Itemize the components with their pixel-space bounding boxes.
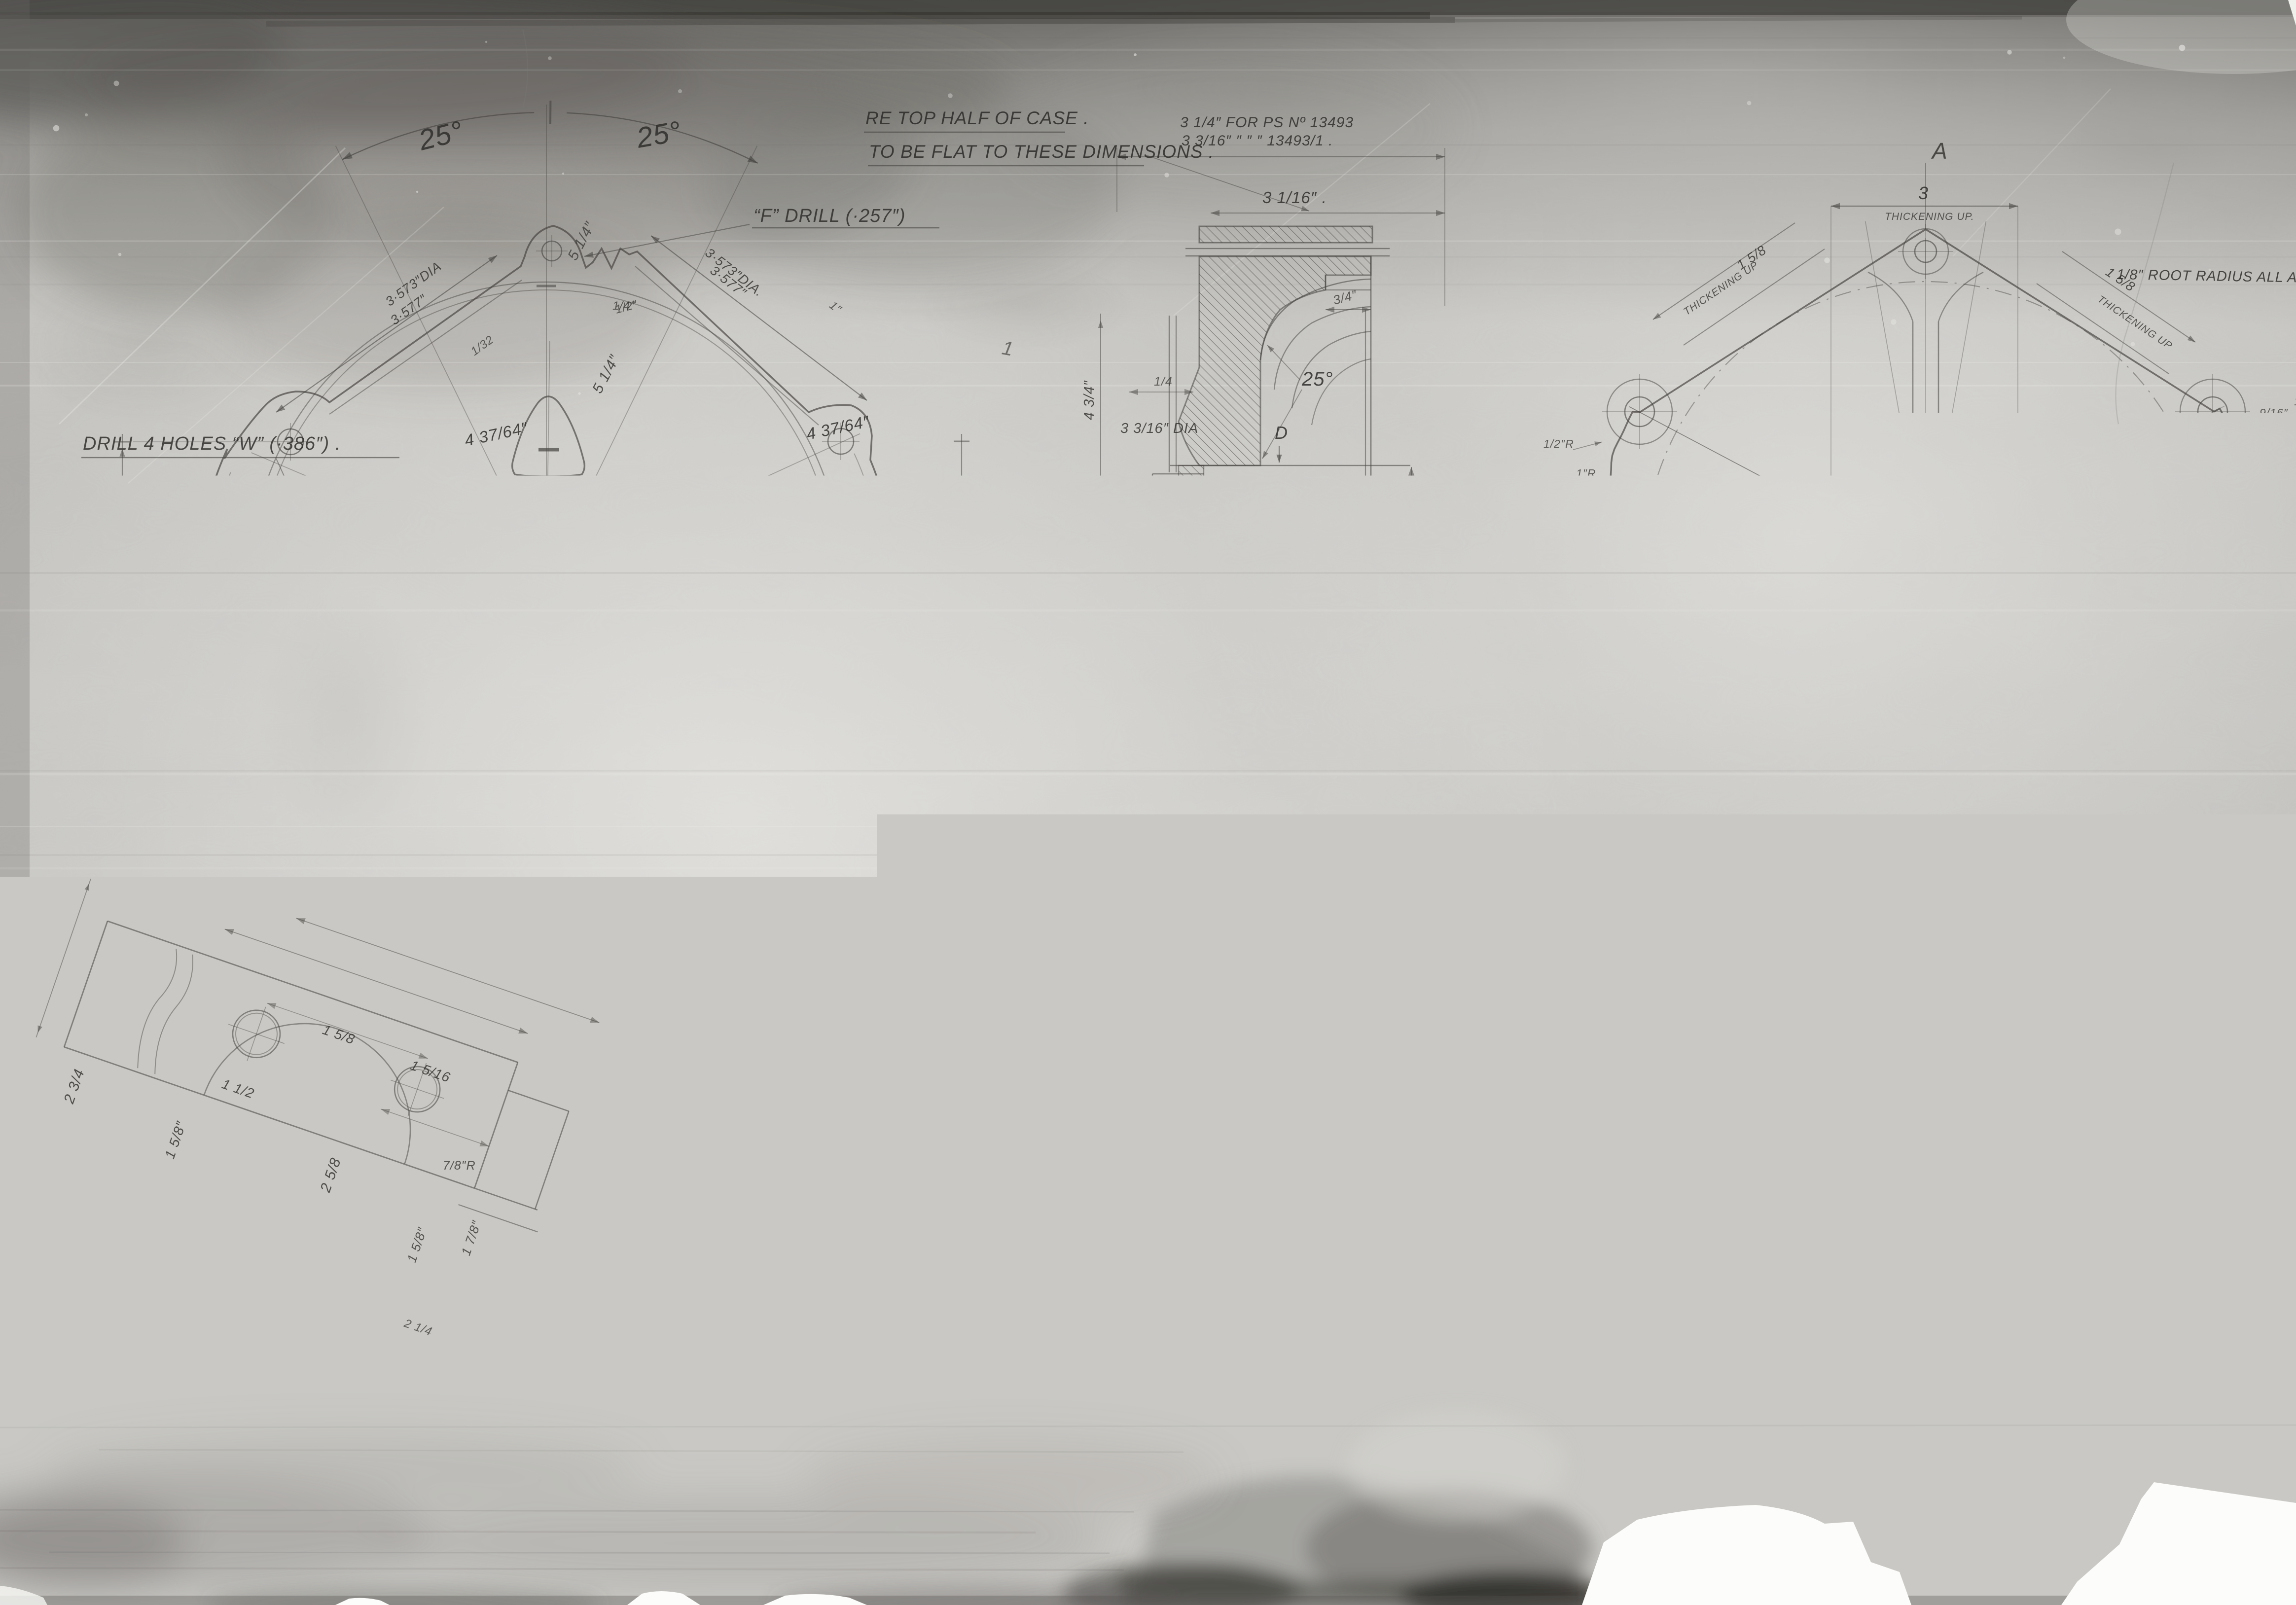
svg-text:5/8″R: 5/8″R — [1227, 1195, 1265, 1211]
svg-text:“F” DRILL (·257″): “F” DRILL (·257″) — [753, 206, 905, 226]
svg-text:5/8″R: 5/8″R — [2169, 850, 2199, 863]
svg-text:2 3/16 DIA: 2 3/16 DIA — [1206, 492, 1221, 560]
svg-text:4 1/2″: 4 1/2″ — [1083, 689, 1099, 729]
svg-text:1 3/4″: 1 3/4″ — [1418, 512, 1434, 552]
svg-text:11/16″ x 13/16″: 11/16″ x 13/16″ — [1077, 1141, 1174, 1156]
svg-text:TAP 3/4″ x20 WHIT x 11/16″ FUL: TAP 3/4″ x20 WHIT x 11/16″ FULL THREAD — [939, 1168, 1276, 1186]
svg-text:RE TOP HALF OF CASE .: RE TOP HALF OF CASE . — [865, 108, 1089, 128]
svg-text:25°: 25° — [1301, 368, 1333, 390]
svg-text:TO THESE DIMENSIONS: TO THESE DIMENSIONS — [1409, 883, 1619, 902]
svg-text:1/2″R: 1/2″R — [2203, 863, 2234, 876]
svg-text:4 3/4″: 4 3/4″ — [1081, 380, 1097, 420]
svg-text:1″R: 1″R — [1597, 636, 1617, 648]
svg-text:SECTION C D: SECTION C D — [1176, 1305, 1293, 1324]
svg-text:3/4″ DIA PADS ON ALL LUGS: 3/4″ DIA PADS ON ALL LUGS — [1028, 923, 1271, 942]
svg-text:3 5/8″: 3 5/8″ — [636, 924, 681, 942]
svg-text:1/4: 1/4 — [2292, 571, 2296, 584]
svg-text:1″: 1″ — [2294, 395, 2296, 408]
svg-text:2″: 2″ — [463, 605, 476, 619]
svg-text:1/16 MACHINING ALLOWANCE WH: 1/16 MACHINING ALLOWANCE WHERE MARKED —— — [1674, 1332, 2068, 1349]
svg-text:3 1/4″ FOR PS Nº 13493: 3 1/4″ FOR PS Nº 13493 — [1180, 114, 1354, 131]
svg-text:15/32″R: 15/32″R — [1676, 832, 1720, 845]
svg-text:3: 3 — [1918, 183, 1929, 203]
svg-text:3 5/8″: 3 5/8″ — [422, 926, 466, 944]
svg-text:TO BE FLAT TO THESE DIMEN: TO BE FLAT TO THESE DIMENSIONS . — [869, 142, 1214, 162]
svg-text:1″R: 1″R — [1569, 516, 1589, 529]
svg-text:5/8″R: 5/8″R — [1845, 932, 1876, 945]
svg-text:1/16: 1/16 — [567, 872, 590, 884]
svg-text:DRILL 3 HOLES “O” (·316″): DRILL 3 HOLES “O” (·316″) — [810, 890, 1053, 911]
svg-text:UNLESS OTHERW SE STAT″D .: UNLESS OTHERW SE STAT″D . — [1677, 1359, 1905, 1375]
svg-text:D: D — [1198, 688, 1211, 707]
svg-text:E: E — [1833, 693, 1846, 713]
svg-text:ROOT RADIUS To BE 1/8″ AT BOSS: ROOT RADIUS To BE 1/8″ AT BOSS — [1562, 1149, 1836, 1167]
svg-text:1 1/2: 1 1/2 — [523, 902, 534, 926]
svg-text:1/32″R: 1/32″R — [1138, 491, 1176, 503]
svg-text:TRACED: TRACED — [1999, 1542, 2055, 1560]
svg-text:WITH FLAT BOTTOM: WITH FLAT BOTTOM — [1237, 1141, 1384, 1156]
svg-text:2 11/16″: 2 11/16″ — [1282, 493, 1345, 511]
svg-text:1/8″: 1/8″ — [2220, 883, 2242, 896]
svg-text:SECTION E-F: SECTION E-F — [1748, 1241, 1898, 1266]
svg-text:THICKENING UP.: THICKENING UP. — [1885, 211, 1974, 222]
svg-text:1/2″R: 1/2″R — [2292, 432, 2296, 445]
svg-text:1/4″: 1/4″ — [1282, 836, 1306, 850]
svg-text:DRAWN.: DRAWN. — [1996, 1485, 2055, 1503]
svg-text:2 5/8″: 2 5/8″ — [155, 731, 171, 770]
svg-text:3 1/16″ .: 3 1/16″ . — [1262, 188, 1327, 207]
svg-text:DRILL 4 HOLES: DRILL 4 HOLES — [939, 1140, 1072, 1159]
svg-text:7/16: 7/16 — [1845, 1174, 1868, 1186]
svg-text:9/32″R: 9/32″R — [2288, 488, 2296, 500]
svg-text:1/2″R: 1/2″R — [1697, 871, 1728, 884]
svg-text:F: F — [1995, 691, 2008, 712]
svg-text:1/4: 1/4 — [1154, 375, 1173, 389]
svg-text:1″R: 1″R — [2273, 525, 2294, 537]
svg-text:13493: 13493 — [2065, 1241, 2128, 1265]
svg-text:9/16″: 9/16″ — [2260, 406, 2288, 419]
svg-text:3/8″: 3/8″ — [102, 606, 115, 629]
svg-text:1 1/4″: 1 1/4″ — [154, 617, 170, 656]
svg-text:5/8″R: 5/8″R — [1733, 871, 1764, 884]
svg-text:1/2″R: 1/2″R — [1873, 967, 1903, 980]
svg-text:B: B — [1922, 968, 1937, 992]
svg-text:& TAPER To “0” AT EDGE OF CAS: & TAPER To “0” AT EDGE OF CASE . — [1562, 1179, 1843, 1197]
svg-text:D: D — [1275, 423, 1288, 443]
svg-text:FROM ¢ .: FROM ¢ . — [1429, 504, 1504, 522]
svg-text:1″R: 1″R — [1576, 467, 1596, 480]
svg-text:1 5/8: 1 5/8 — [802, 918, 817, 949]
svg-text:7/8″R: 7/8″R — [443, 1159, 476, 1173]
svg-text:1 1/4″: 1 1/4″ — [914, 613, 929, 652]
svg-text:2 5/8″: 2 5/8″ — [936, 496, 953, 538]
svg-text:1/4″R: 1/4″R — [1607, 528, 1637, 541]
svg-text:5/8″ RADIUS IN ALL CORNERS: 5/8″ RADIUS IN ALL CORNERS — [2045, 581, 2242, 596]
svg-text:A: A — [1931, 138, 1948, 164]
svg-text:WIDE: WIDE — [1842, 1187, 1872, 1200]
svg-text:1/2″R: 1/2″R — [1543, 437, 1574, 450]
svg-text:THIS ONLY APPLIES To 3 LOWER: THIS ONLY APPLIES To 3 LOWER WEBS — [1559, 1209, 1874, 1226]
svg-text:2 5/8″: 2 5/8″ — [101, 501, 117, 543]
svg-text:1/32″: 1/32″ — [1127, 643, 1158, 657]
svg-text:3/8″R: 3/8″R — [1167, 712, 1200, 726]
svg-text:SECTION A-B: SECTION A-B — [1214, 1035, 1363, 1061]
svg-text:1 1/2: 1 1/2 — [2282, 743, 2296, 756]
svg-text:3 3/16″ DIA: 3 3/16″ DIA — [1120, 421, 1198, 436]
svg-text:1/8″: 1/8″ — [1406, 724, 1430, 738]
svg-text:7/16: 7/16 — [1239, 516, 1265, 530]
svg-text:3 11/16″: 3 11/16″ — [938, 712, 954, 769]
svg-text:9/32″R: 9/32″R — [2203, 906, 2241, 919]
svg-text:1/2″R: 1/2″R — [1541, 538, 1572, 551]
svg-text:2 BOSSES 3/4″ HIGH: 2 BOSSES 3/4″ HIGH — [1429, 478, 1597, 497]
svg-text:7/8R: 7/8R — [640, 1162, 668, 1176]
